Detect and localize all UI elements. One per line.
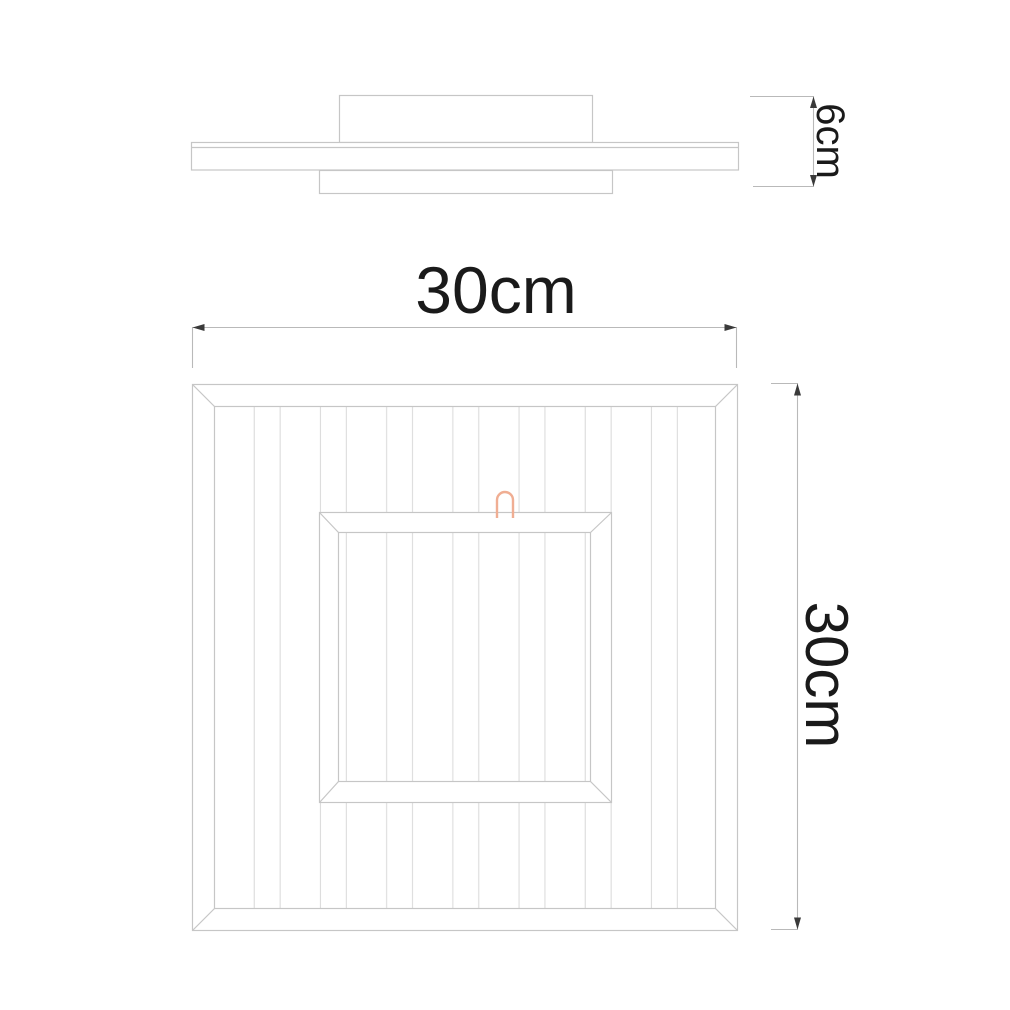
height-arrow-up-icon	[794, 384, 801, 396]
inner-square-panel	[339, 533, 591, 782]
outer-miter-bottom-right	[716, 909, 738, 931]
height-arrow-down-icon	[794, 918, 801, 930]
outer-miter-bottom-left	[193, 909, 215, 931]
top-view	[193, 385, 738, 931]
depth-dimension: 6cm	[750, 97, 852, 187]
depth-label: 6cm	[808, 103, 852, 179]
depth-dimension-line	[750, 97, 814, 187]
width-label: 30cm	[415, 253, 576, 327]
outer-miter-top-left	[193, 385, 215, 407]
drawing-canvas: 6cm 30cm	[0, 0, 1010, 1010]
height-label: 30cm	[793, 602, 860, 749]
canopy-outline	[340, 96, 593, 143]
width-arrow-left-icon	[193, 324, 205, 331]
width-dimension: 30cm	[193, 253, 737, 368]
dimension-diagram: 6cm 30cm	[0, 0, 1010, 1010]
side-view	[192, 96, 739, 194]
height-dimension: 30cm	[771, 384, 860, 930]
width-arrow-right-icon	[725, 324, 737, 331]
outer-miter-top-right	[716, 385, 738, 407]
width-dimension-line	[193, 328, 737, 369]
light-bar-outline	[192, 143, 739, 171]
bottom-plate-outline	[320, 171, 613, 194]
